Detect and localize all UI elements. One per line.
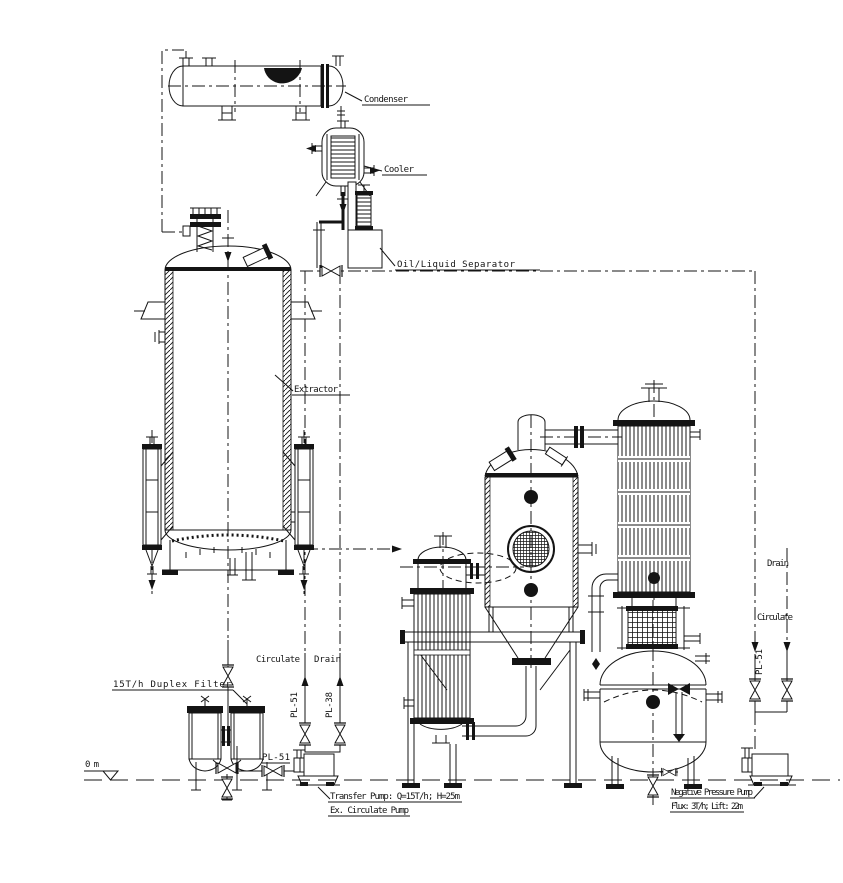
flow-arrow-down-icon (149, 580, 156, 590)
circulation-vessel (400, 532, 524, 592)
transfer-pump-label: Transfer Pump: Q=15T/h; H=25m Ex. Circul… (318, 787, 462, 816)
condenser-label: Condenser (345, 92, 430, 105)
duplex-filter: 15T/h Duplex Filter (112, 640, 272, 800)
oil-liquid-separator: Oil/Liquid Separator (313, 182, 540, 277)
line-number-pl51-suction: PL-51 (262, 753, 290, 763)
circulate-label-mid: Circulate (256, 655, 300, 665)
svg-text:Condenser: Condenser (364, 95, 409, 105)
coil-heat-exchanger (617, 598, 700, 650)
flow-arrow-right-icon (392, 546, 402, 553)
valve (320, 265, 342, 277)
drain-label-mid: Drain (314, 655, 341, 665)
negative-pressure-pump-label: Negative Pressure Pump Flux: 3T/h; Lift:… (670, 787, 764, 812)
pipeline-network (162, 50, 793, 752)
circulate-label-right: Circulate (757, 613, 793, 623)
nozzle-cap (646, 695, 660, 709)
flow-arrow-down-icon (301, 580, 308, 590)
diagram-canvas: 0m Condenser (0, 0, 843, 883)
svg-text:Oil/Liquid Separator: Oil/Liquid Separator (397, 260, 516, 270)
oil-liquid-separator-label: Oil/Liquid Separator (380, 248, 540, 270)
valve (592, 658, 600, 670)
drain-label-right: Drain (767, 559, 789, 569)
transfer-pump: PL-51 Transfer Pump: Q=15T/h; H=25m Ex. … (239, 750, 462, 816)
valve (647, 775, 659, 797)
svg-text:Transfer Pump: Q=15T/h; H=25m: Transfer Pump: Q=15T/h; H=25m (330, 792, 460, 802)
negative-pressure-pump-spec: Flux: 3T/h; Lift: 22m (671, 802, 743, 812)
valve (334, 723, 346, 745)
nozzle-cap (524, 490, 538, 504)
ground-level-label: 0m (85, 760, 99, 770)
valve (781, 679, 793, 701)
ground-datum: 0m (84, 760, 840, 780)
valve (262, 765, 284, 777)
svg-text:Cooler: Cooler (384, 165, 415, 175)
extractor: Extractor (134, 208, 350, 598)
flow-arrow-down-icon (784, 642, 791, 652)
svg-text:Extractor: Extractor (294, 385, 339, 395)
line-number-pl51-right: PL-51 (755, 649, 765, 675)
flow-arrow-down-icon (225, 252, 232, 262)
line-number-pl38-mid: PL-38 (325, 692, 335, 718)
separator-vessel (485, 415, 622, 672)
valve (221, 777, 233, 799)
datum-triangle-icon (103, 771, 118, 780)
vapour-line (162, 50, 184, 232)
nozzle-cap (524, 583, 538, 597)
condenser: Condenser (168, 51, 430, 126)
transfer-pump-note: Ex. Circulate Pump (330, 806, 409, 816)
svg-text:Negative Pressure Pump: Negative Pressure Pump (671, 788, 753, 798)
flow-arrow-left-icon (306, 145, 316, 152)
mid-line-labels: Circulate Drain PL-51 PL-38 (256, 655, 341, 718)
manhole (488, 446, 517, 472)
svg-text:15T/h Duplex Filter: 15T/h Duplex Filter (113, 680, 232, 690)
process-diagram: 0m Condenser (0, 0, 843, 883)
nozzle-cap (648, 572, 660, 584)
evaporator-heater (402, 588, 536, 743)
valve (749, 679, 761, 701)
valve (662, 768, 677, 776)
valve (299, 723, 311, 745)
extractor-side-flange (183, 226, 190, 236)
valve (216, 762, 238, 774)
valve (673, 734, 685, 742)
receiver-vessel (584, 600, 722, 805)
duplex-filter-label: 15T/h Duplex Filter (112, 680, 247, 704)
line-number-pl51-mid: PL-51 (290, 692, 300, 718)
nozzle (544, 446, 567, 467)
